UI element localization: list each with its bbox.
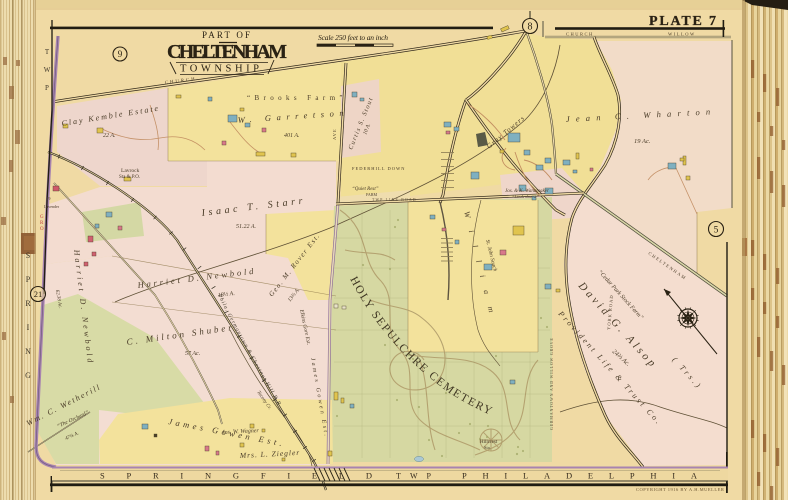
svg-text:SPRINGFIELD: SPRINGFIELD — [100, 471, 390, 481]
svg-text:PLATE 7: PLATE 7 — [649, 14, 719, 29]
svg-text:FEDERHILL DOWN: FEDERHILL DOWN — [352, 166, 405, 171]
svg-text:TWP LINE ROAD: TWP LINE ROAD — [372, 198, 417, 202]
svg-text:“Lindenhurst”: “Lindenhurst” — [512, 194, 539, 199]
svg-text:TOWNSHIP: TOWNSHIP — [180, 64, 264, 75]
svg-text:8: 8 — [528, 22, 533, 33]
svg-text:19: 19 — [46, 196, 51, 201]
svg-text:TWP: TWP — [396, 472, 444, 481]
svg-text:57 Ac.: 57 Ac. — [185, 351, 200, 357]
svg-text:COPYRIGHT 1916 BY A.H.MUELLER: COPYRIGHT 1916 BY A.H.MUELLER — [636, 487, 724, 492]
svg-text:Lavrock: Lavrock — [121, 168, 140, 174]
svg-text:AVE: AVE — [332, 128, 337, 140]
svg-text:R: R — [25, 299, 31, 308]
svg-text:CHELTENHAM: CHELTENHAM — [167, 41, 287, 63]
svg-text:5: 5 — [714, 225, 719, 235]
svg-text:W: W — [44, 66, 51, 74]
svg-text:P: P — [26, 275, 31, 284]
svg-text:GERMANTOWN AND WILLOW GROVE: GERMANTOWN AND WILLOW GROVE — [549, 337, 554, 430]
svg-text:I: I — [27, 323, 30, 332]
svg-text:WILLOW: WILLOW — [668, 32, 696, 37]
svg-text:51.22 A.: 51.22 A. — [236, 224, 256, 230]
svg-text:Scale 250 feet to an inch: Scale 250 feet to an inch — [318, 33, 388, 42]
svg-text:22 A.: 22 A. — [103, 133, 116, 139]
svg-text:T: T — [45, 48, 50, 56]
svg-text:PART OF: PART OF — [202, 30, 254, 40]
svg-text:19 Ac.: 19 Ac. — [634, 138, 651, 145]
svg-text:CHURCH: CHURCH — [566, 32, 594, 37]
svg-text:21: 21 — [34, 289, 43, 299]
svg-text:Lavender: Lavender — [44, 204, 60, 209]
svg-text:FARM: FARM — [366, 192, 377, 197]
svg-text:Sta & P.O.: Sta & P.O. — [119, 175, 140, 180]
svg-text:G: G — [40, 215, 44, 220]
svg-text:S: S — [26, 251, 30, 260]
svg-text:G: G — [25, 371, 31, 380]
svg-text:9: 9 — [118, 49, 123, 59]
svg-text:P: P — [45, 84, 49, 92]
svg-text:401 A.: 401 A. — [284, 132, 300, 139]
svg-text:Sta.: Sta. — [484, 445, 491, 450]
svg-text:N: N — [25, 347, 31, 356]
svg-text:O: O — [40, 227, 44, 232]
